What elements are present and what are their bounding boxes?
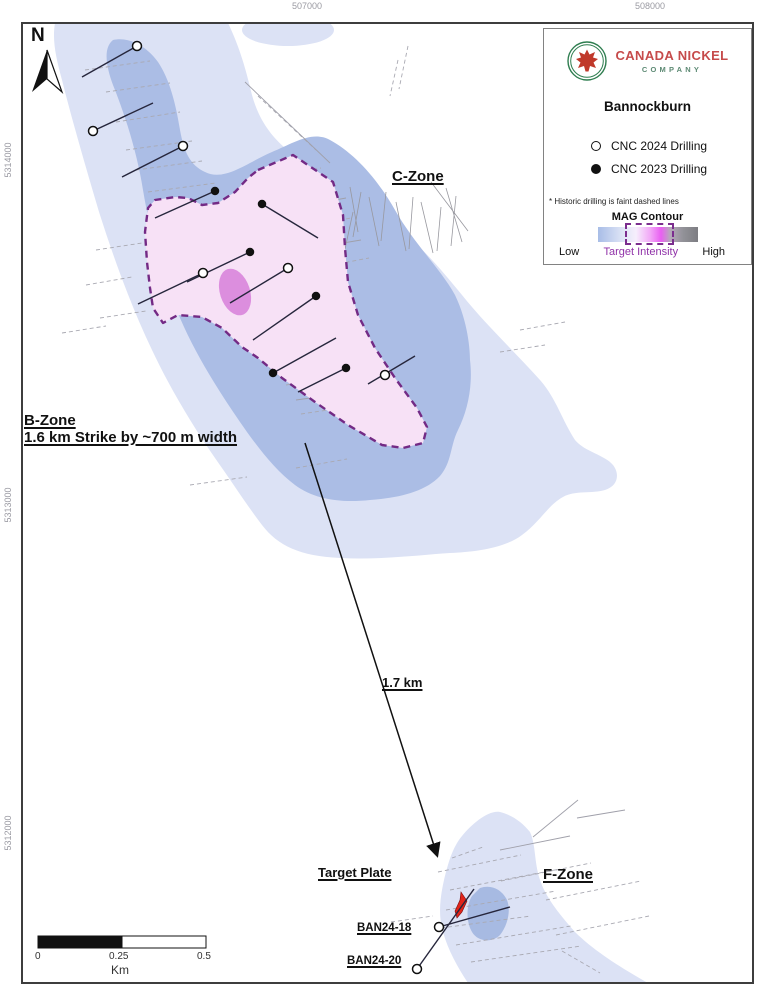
scale-bar xyxy=(38,936,206,948)
drill-collar-2023 xyxy=(259,201,266,208)
mag-low-label: Low xyxy=(559,246,579,258)
legend-panel: CANADA NICKEL COMPANY Bannockburn CNC 20… xyxy=(543,28,752,265)
drill-collar-2024 xyxy=(284,264,293,273)
scale-tick-025: 0.25 xyxy=(109,951,128,962)
f-zone-label: F-Zone xyxy=(543,866,593,883)
ban24-20-label: BAN24-20 xyxy=(347,955,401,967)
maple-leaf-logo-icon xyxy=(566,40,608,82)
drill-collar-2023 xyxy=(343,365,350,372)
company-logo: CANADA NICKEL COMPANY xyxy=(544,40,751,82)
drill-collar-2023 xyxy=(212,188,219,195)
map-page: 507000 508000 5314000 5313000 5312000 xyxy=(0,0,772,1000)
mag-high-label: High xyxy=(702,246,725,258)
project-title: Bannockburn xyxy=(544,99,751,114)
scale-unit: Km xyxy=(111,963,129,977)
mag-low-blob-north xyxy=(242,14,334,46)
drill-collar-2024 xyxy=(179,142,188,151)
north-label: N xyxy=(31,25,45,47)
b-zone-dimensions: 1.6 km Strike by ~700 m width xyxy=(24,429,237,446)
drill-collar-2024 xyxy=(89,127,98,136)
filled-circle-icon xyxy=(591,164,601,174)
drill-collar-2024 xyxy=(413,965,422,974)
ban24-18-label: BAN24-18 xyxy=(357,922,411,934)
scale-tick-0: 0 xyxy=(35,951,41,962)
legend-item-2023: CNC 2023 Drilling xyxy=(591,162,751,176)
company-subtitle: COMPANY xyxy=(642,65,702,74)
company-name: CANADA NICKEL xyxy=(615,48,728,63)
mag-contour-title: MAG Contour xyxy=(544,211,751,223)
target-intensity-dashed-box xyxy=(625,223,674,245)
scale-tick-05: 0.5 xyxy=(197,951,211,962)
distance-label: 1.7 km xyxy=(382,675,422,690)
b-zone-label: B-Zone 1.6 km Strike by ~700 m width xyxy=(24,412,237,447)
drill-collar-2024 xyxy=(435,923,444,932)
b-zone-name: B-Zone xyxy=(24,412,237,429)
legend-item-2023-label: CNC 2023 Drilling xyxy=(611,162,707,176)
c-zone-label: C-Zone xyxy=(392,168,444,185)
drill-collar-2023 xyxy=(247,249,254,256)
historic-drilling-note: * Historic drilling is faint dashed line… xyxy=(549,197,751,206)
legend-item-2024: CNC 2024 Drilling xyxy=(591,139,751,153)
drill-collar-2023 xyxy=(270,370,277,377)
drill-collar-2024 xyxy=(199,269,208,278)
open-circle-icon xyxy=(591,141,601,151)
drill-collar-2024 xyxy=(381,371,390,380)
drill-collar-2023 xyxy=(313,293,320,300)
legend-item-2024-label: CNC 2024 Drilling xyxy=(611,139,707,153)
drill-collar-2024 xyxy=(133,42,142,51)
target-plate-label: Target Plate xyxy=(318,865,391,880)
mag-target-label: Target Intensity xyxy=(603,246,678,258)
mag-gradient-bar xyxy=(598,227,698,242)
